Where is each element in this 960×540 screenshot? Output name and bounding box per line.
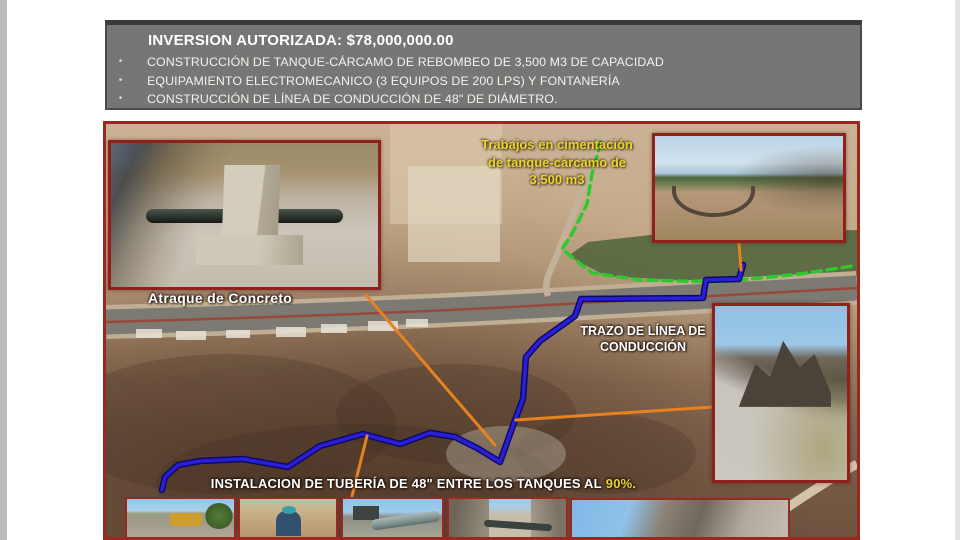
- investment-header-box: INVERSION AUTORIZADA: $78,000,000.00 • C…: [105, 20, 862, 110]
- presentation-slide: INVERSION AUTORIZADA: $78,000,000.00 • C…: [0, 0, 960, 540]
- bullet-dot: •: [107, 72, 134, 91]
- curved-tank-wall: [672, 186, 755, 217]
- bullet-text: CONSTRUCCIÓN DE TANQUE-CÁRCAMO DE REBOMB…: [134, 53, 860, 72]
- bottom-photo-hillside: [570, 498, 790, 540]
- concrete-anchor-base: [196, 235, 303, 265]
- bullet-text: CONSTRUCCIÓN DE LÍNEA DE CONDUCCIÓN DE 4…: [134, 90, 860, 109]
- bullet-item: • EQUIPAMIENTO ELECTROMECANICO (3 EQUIPO…: [107, 72, 860, 91]
- bottom-photo-excavator: [125, 497, 236, 540]
- inset-hillside-excavation-photo: [712, 303, 850, 483]
- orange-leader-tanksite: [739, 243, 741, 270]
- rock-wall-right: [531, 499, 566, 540]
- bullet-item: • CONSTRUCCIÓN DE LÍNEA DE CONDUCCIÓN DE…: [107, 90, 860, 109]
- bottom-photo-canyon-pipe: [447, 497, 568, 540]
- label-trabajos: Trabajos en cimentación de tanque-cárcam…: [467, 136, 647, 189]
- label-trabajos-line3: 3,500 m3: [467, 171, 647, 189]
- tree: [205, 503, 233, 528]
- label-trazo: TRAZO DE LÍNEA DE CONDUCCIÓN: [568, 323, 718, 355]
- bullet-text: EQUIPAMIENTO ELECTROMECANICO (3 EQUIPOS …: [134, 72, 860, 91]
- bullet-dot: •: [107, 53, 134, 72]
- bottom-photo-worker-trench: [238, 497, 338, 540]
- excavator: [170, 513, 202, 526]
- left-edge-strip: [0, 0, 7, 540]
- bullet-item: • CONSTRUCCIÓN DE TANQUE-CÁRCAMO DE REBO…: [107, 53, 860, 72]
- rock-wall-left: [449, 499, 489, 540]
- bottom-photo-pipe-machinery: [341, 497, 444, 540]
- pipe-section: [370, 511, 440, 531]
- header-title: INVERSION AUTORIZADA: $78,000,000.00: [148, 32, 860, 49]
- label-trazo-line2: CONDUCCIÓN: [568, 339, 718, 355]
- worker: [276, 511, 301, 536]
- bullet-dot: •: [107, 90, 134, 109]
- label-trabajos-line2: de tanque-cárcamo de: [467, 154, 647, 172]
- label-instalacion: INSTALACION DE TUBERÍA DE 48" ENTRE LOS …: [166, 476, 681, 491]
- label-atraque: Atraque de Concreto: [148, 290, 328, 306]
- progress-value: 90%.: [606, 476, 636, 491]
- label-trazo-line1: TRAZO DE LÍNEA DE: [568, 323, 718, 339]
- aerial-map-photo: Trabajos en cimentación de tanque-cárcam…: [103, 121, 860, 540]
- label-trabajos-line1: Trabajos en cimentación: [467, 136, 647, 154]
- inset-atraque-photo: [108, 140, 381, 290]
- rocky-crag: [739, 341, 831, 407]
- worker-helmet: [282, 506, 295, 513]
- label-instalacion-text: INSTALACION DE TUBERÍA DE 48" ENTRE LOS …: [211, 476, 602, 491]
- right-edge-strip: [955, 0, 960, 540]
- inset-tank-foundation-photo: [652, 133, 846, 243]
